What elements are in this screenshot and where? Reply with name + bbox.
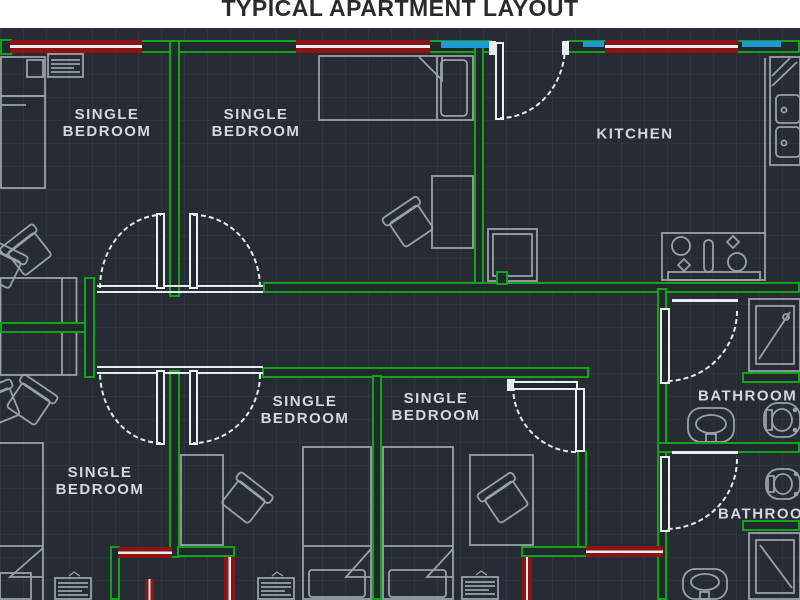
room-label-line: BEDROOM: [212, 123, 301, 140]
door-arc: [666, 311, 737, 381]
room-label-bathroom-upper: BATHROOM: [698, 388, 797, 405]
room-label-line: SINGLE: [261, 393, 350, 410]
room-label-bedroom-middle-right: SINGLE BEDROOM: [392, 390, 481, 424]
room-label-line: BEDROOM: [56, 481, 145, 498]
room-label-line: SINGLE: [392, 390, 481, 407]
room-label-line: SINGLE: [63, 106, 152, 123]
title-strip: TYPICAL APARTMENT LAYOUT: [0, 0, 800, 28]
floor-plan-screenshot: SINGLE BEDROOM SINGLE BEDROOM KITCHEN SI…: [0, 0, 800, 600]
room-label-bedroom-top-middle: SINGLE BEDROOM: [212, 106, 301, 140]
door-arc: [513, 386, 577, 452]
door-arc: [100, 372, 161, 443]
room-label-bedroom-middle-left: SINGLE BEDROOM: [261, 393, 350, 427]
door-arc: [193, 215, 260, 288]
room-label-bathroom-lower: BATHROOM: [718, 506, 800, 523]
room-label-line: SINGLE: [212, 106, 301, 123]
room-label-line: BEDROOM: [392, 407, 481, 424]
room-label-bedroom-bottom-left: SINGLE BEDROOM: [56, 464, 145, 498]
room-label-line: BEDROOM: [261, 410, 350, 427]
door-arc: [193, 374, 260, 443]
room-label-bedroom-top-left: SINGLE BEDROOM: [63, 106, 152, 140]
door-arc: [100, 215, 161, 288]
room-label-line: BEDROOM: [63, 123, 152, 140]
room-label-kitchen: KITCHEN: [596, 126, 673, 143]
door-swing-layer: [0, 0, 800, 600]
door-arc: [500, 46, 565, 118]
room-label-line: SINGLE: [56, 464, 145, 481]
page-title: TYPICAL APARTMENT LAYOUT: [0, 0, 800, 22]
